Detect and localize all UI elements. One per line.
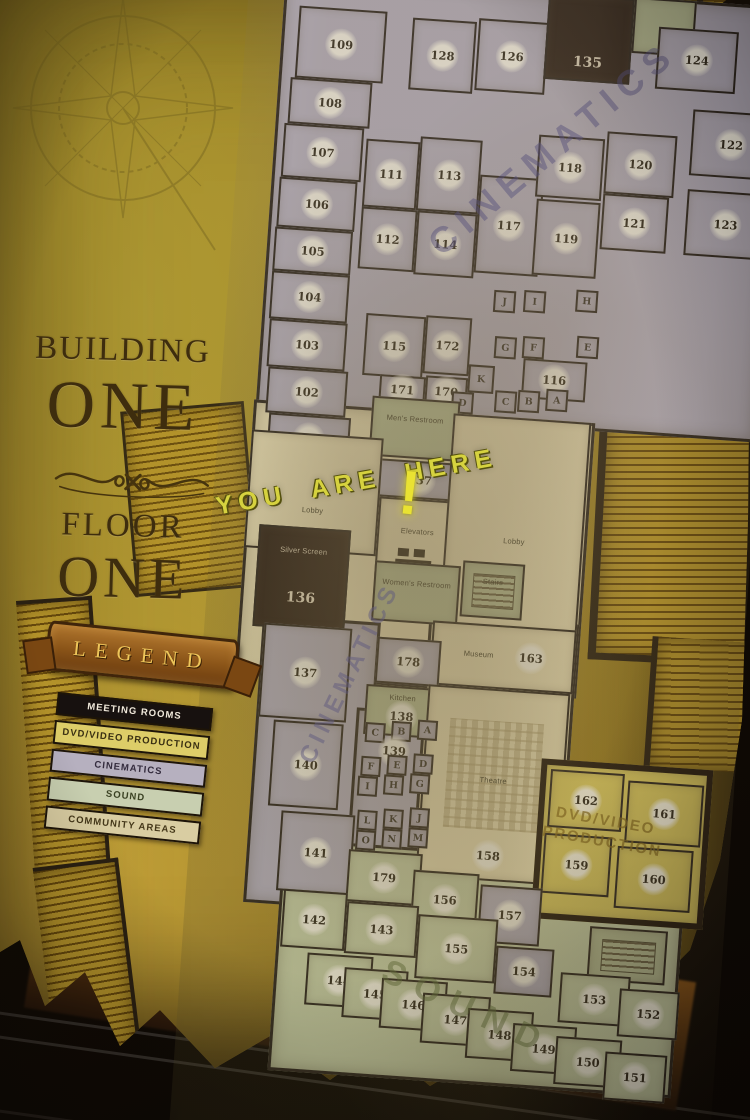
compass-rose-icon — [5, 0, 255, 260]
room-number-badge: 124 — [680, 43, 714, 77]
room-107: 107 — [281, 123, 365, 182]
room-number-badge: 142 — [297, 903, 331, 937]
room-140: 140 — [268, 720, 344, 811]
room-women-s-restroom: Women's Restroom — [371, 560, 461, 626]
room-number-badge: 118 — [553, 151, 587, 185]
room-name-label: Lobby — [447, 533, 581, 551]
room-159: 159 — [540, 833, 612, 898]
room-161: 161 — [624, 780, 704, 847]
room-number-badge: 121 — [617, 206, 651, 240]
room-number-badge: 163 — [514, 641, 548, 675]
room-126: 126 — [474, 18, 549, 95]
room-number-light: 136 — [285, 589, 315, 607]
room-number-badge: 126 — [495, 39, 529, 73]
room-108: 108 — [288, 77, 373, 129]
floor-map-sign-photo: 1091281261351241221231081071061051041031… — [0, 0, 750, 1120]
room-n: N — [381, 828, 402, 849]
room-number-badge: 119 — [549, 222, 583, 256]
room-f: F — [522, 336, 545, 359]
room-number-badge: 140 — [289, 748, 323, 782]
room-number-badge: 106 — [300, 187, 334, 221]
room-c: C — [494, 390, 517, 413]
room-name-label: Men's Restroom — [373, 412, 457, 426]
building-number: ONE — [17, 365, 229, 447]
room-number-badge: 109 — [324, 28, 358, 62]
room-112: 112 — [358, 206, 418, 272]
room-number-badge: 162 — [569, 783, 603, 817]
room-number-badge: 128 — [426, 39, 460, 73]
legend-title: LEGEND — [72, 635, 212, 674]
room-i: I — [357, 776, 378, 797]
room-j: J — [409, 807, 430, 828]
room-143: 143 — [344, 901, 419, 958]
room-number-badge: 104 — [292, 280, 326, 314]
room-j: J — [493, 290, 516, 313]
room-o: O — [355, 830, 376, 851]
room-number-badge: 112 — [371, 222, 405, 256]
room-g: G — [409, 773, 430, 794]
room-154: 154 — [493, 946, 554, 998]
room-124: 124 — [655, 27, 739, 94]
room-114: 114 — [413, 210, 477, 278]
room-name-label: Silver Screen — [259, 544, 347, 559]
room-123: 123 — [683, 189, 750, 260]
room-number-badge: 115 — [377, 329, 411, 363]
room-number-badge: 114 — [428, 227, 462, 261]
room-128: 128 — [408, 18, 477, 94]
room-number-badge: 154 — [507, 955, 541, 989]
room-number-badge: 105 — [296, 234, 330, 268]
room-137: 137 — [258, 623, 352, 723]
room-k: K — [383, 808, 404, 829]
room-number-badge: 179 — [367, 861, 401, 895]
room-silver-screen: Silver Screen136 — [252, 524, 351, 632]
room-number-badge: 103 — [290, 328, 324, 362]
room-number-light: 135 — [572, 54, 602, 72]
room-number-badge: 111 — [374, 157, 408, 191]
room-number-badge: 150 — [571, 1045, 605, 1079]
floor-plan: 1091281261351241221231081071061051041031… — [170, 0, 750, 1120]
room-162: 162 — [547, 769, 625, 832]
flourish-divider — [51, 452, 213, 508]
room-h: H — [575, 290, 598, 313]
room-number-badge: 113 — [432, 158, 466, 192]
room-i: I — [523, 290, 546, 313]
room-name-label: Women's Restroom — [375, 577, 457, 591]
room-104: 104 — [269, 270, 350, 323]
room-141: 141 — [276, 810, 355, 895]
room-number-badge: 153 — [577, 983, 611, 1017]
room-h: H — [383, 774, 404, 795]
room-number-badge: 141 — [299, 836, 333, 870]
room-number-badge: 161 — [647, 797, 681, 831]
room-115: 115 — [362, 313, 426, 379]
room-g: G — [494, 336, 517, 359]
room-number-badge: 123 — [708, 208, 742, 242]
room-178: 178 — [375, 637, 442, 687]
room-number-badge: 178 — [391, 645, 425, 679]
room-museum: Museum163 — [429, 620, 577, 694]
room-102: 102 — [265, 366, 348, 417]
room-e: E — [386, 755, 407, 776]
room-b: B — [517, 390, 540, 413]
room-106: 106 — [276, 177, 357, 232]
room-122: 122 — [689, 109, 750, 180]
room-120: 120 — [603, 131, 677, 198]
room-number-badge: 160 — [637, 862, 671, 896]
room-160: 160 — [614, 846, 694, 913]
room-121: 121 — [599, 193, 669, 253]
room-l: L — [356, 810, 377, 831]
room-105: 105 — [272, 226, 353, 275]
room-142: 142 — [280, 889, 348, 951]
room-152: 152 — [617, 988, 680, 1040]
room-area: 135 — [543, 0, 635, 85]
legend: MEETING ROOMSDVD/VIDEO PRODUCTIONCINEMAT… — [43, 692, 213, 849]
floor-number: ONE — [17, 541, 229, 613]
room-number-badge: 156 — [428, 883, 462, 917]
room-number-badge: 151 — [618, 1061, 652, 1095]
room-118: 118 — [535, 135, 605, 201]
room-number-badge: 137 — [288, 656, 322, 690]
room-111: 111 — [362, 139, 421, 211]
room-k: K — [467, 364, 495, 394]
room-number-badge: 117 — [492, 209, 526, 243]
room-number-badge: 120 — [623, 148, 657, 182]
room-m: M — [407, 827, 428, 848]
stairs-icon — [600, 939, 656, 975]
room-113: 113 — [416, 136, 483, 214]
room-number-badge: 172 — [430, 329, 464, 363]
room-number-badge: 158 — [471, 839, 505, 873]
room-number-badge: 108 — [313, 86, 347, 120]
room-172: 172 — [422, 315, 472, 376]
room-119: 119 — [532, 199, 601, 279]
room-number-badge: 102 — [290, 375, 324, 409]
room-number-badge: 155 — [439, 932, 473, 966]
room-a: A — [545, 389, 568, 412]
room-number-badge: 107 — [305, 135, 339, 169]
room-d: D — [412, 753, 433, 774]
room-number-badge: 143 — [364, 912, 398, 946]
room-f: F — [360, 756, 381, 777]
room-number-badge: 122 — [714, 128, 748, 162]
room-151: 151 — [602, 1052, 667, 1104]
map-hatch-area — [33, 857, 142, 1058]
room-number-badge: 159 — [559, 848, 593, 882]
room-e: E — [576, 336, 599, 359]
room-109: 109 — [295, 6, 388, 84]
room-155: 155 — [414, 914, 498, 983]
room-stairs: Stairs — [460, 560, 526, 620]
room-number-badge: 152 — [631, 997, 665, 1031]
room-103: 103 — [267, 318, 348, 371]
